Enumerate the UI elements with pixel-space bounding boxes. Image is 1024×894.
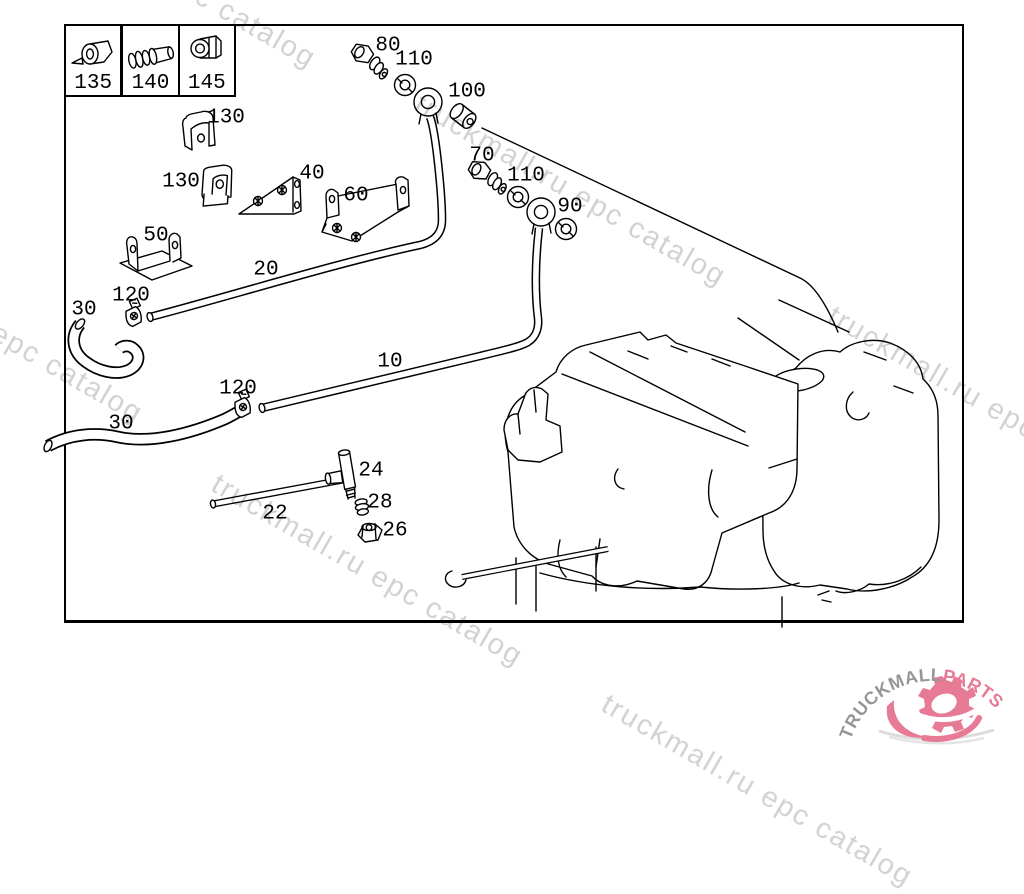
bracket-50-drawing <box>120 233 192 280</box>
clamp-120-upper-drawing <box>123 298 143 327</box>
bolt-70-drawing <box>465 157 512 195</box>
bracket-130-lower-drawing <box>201 164 233 208</box>
pipe-10-drawing <box>258 228 539 413</box>
legend-icon-140 <box>127 44 174 69</box>
bolt-80-drawing <box>348 40 395 80</box>
sleeve-100-drawing <box>448 101 479 130</box>
legend-icon-145 <box>191 36 221 58</box>
bracket-40-drawing <box>239 177 301 214</box>
svg-text:TRUCKMALLPARTS: TRUCKMALLPARTS <box>836 665 1008 742</box>
washer-110-mid-drawing <box>508 187 529 208</box>
nut-26-drawing <box>358 524 382 543</box>
bracket-60-drawing <box>322 177 409 242</box>
washer-110-upper-drawing <box>395 75 416 96</box>
bracket-130-upper-drawing <box>183 111 215 150</box>
tee-fitting-24-drawing <box>322 449 357 502</box>
hose-30-upper-drawing <box>74 317 139 372</box>
hose-30-lower-drawing <box>42 408 244 453</box>
washer-90-drawing <box>556 219 577 240</box>
parts-diagram-page: { "watermark": { "text": "truckmall.ru e… <box>0 0 1024 750</box>
legend-icon-135 <box>72 41 112 64</box>
truckmall-parts-logo: TRUCKMALLPARTS <box>834 636 1024 750</box>
bush-28-drawing <box>354 498 370 516</box>
